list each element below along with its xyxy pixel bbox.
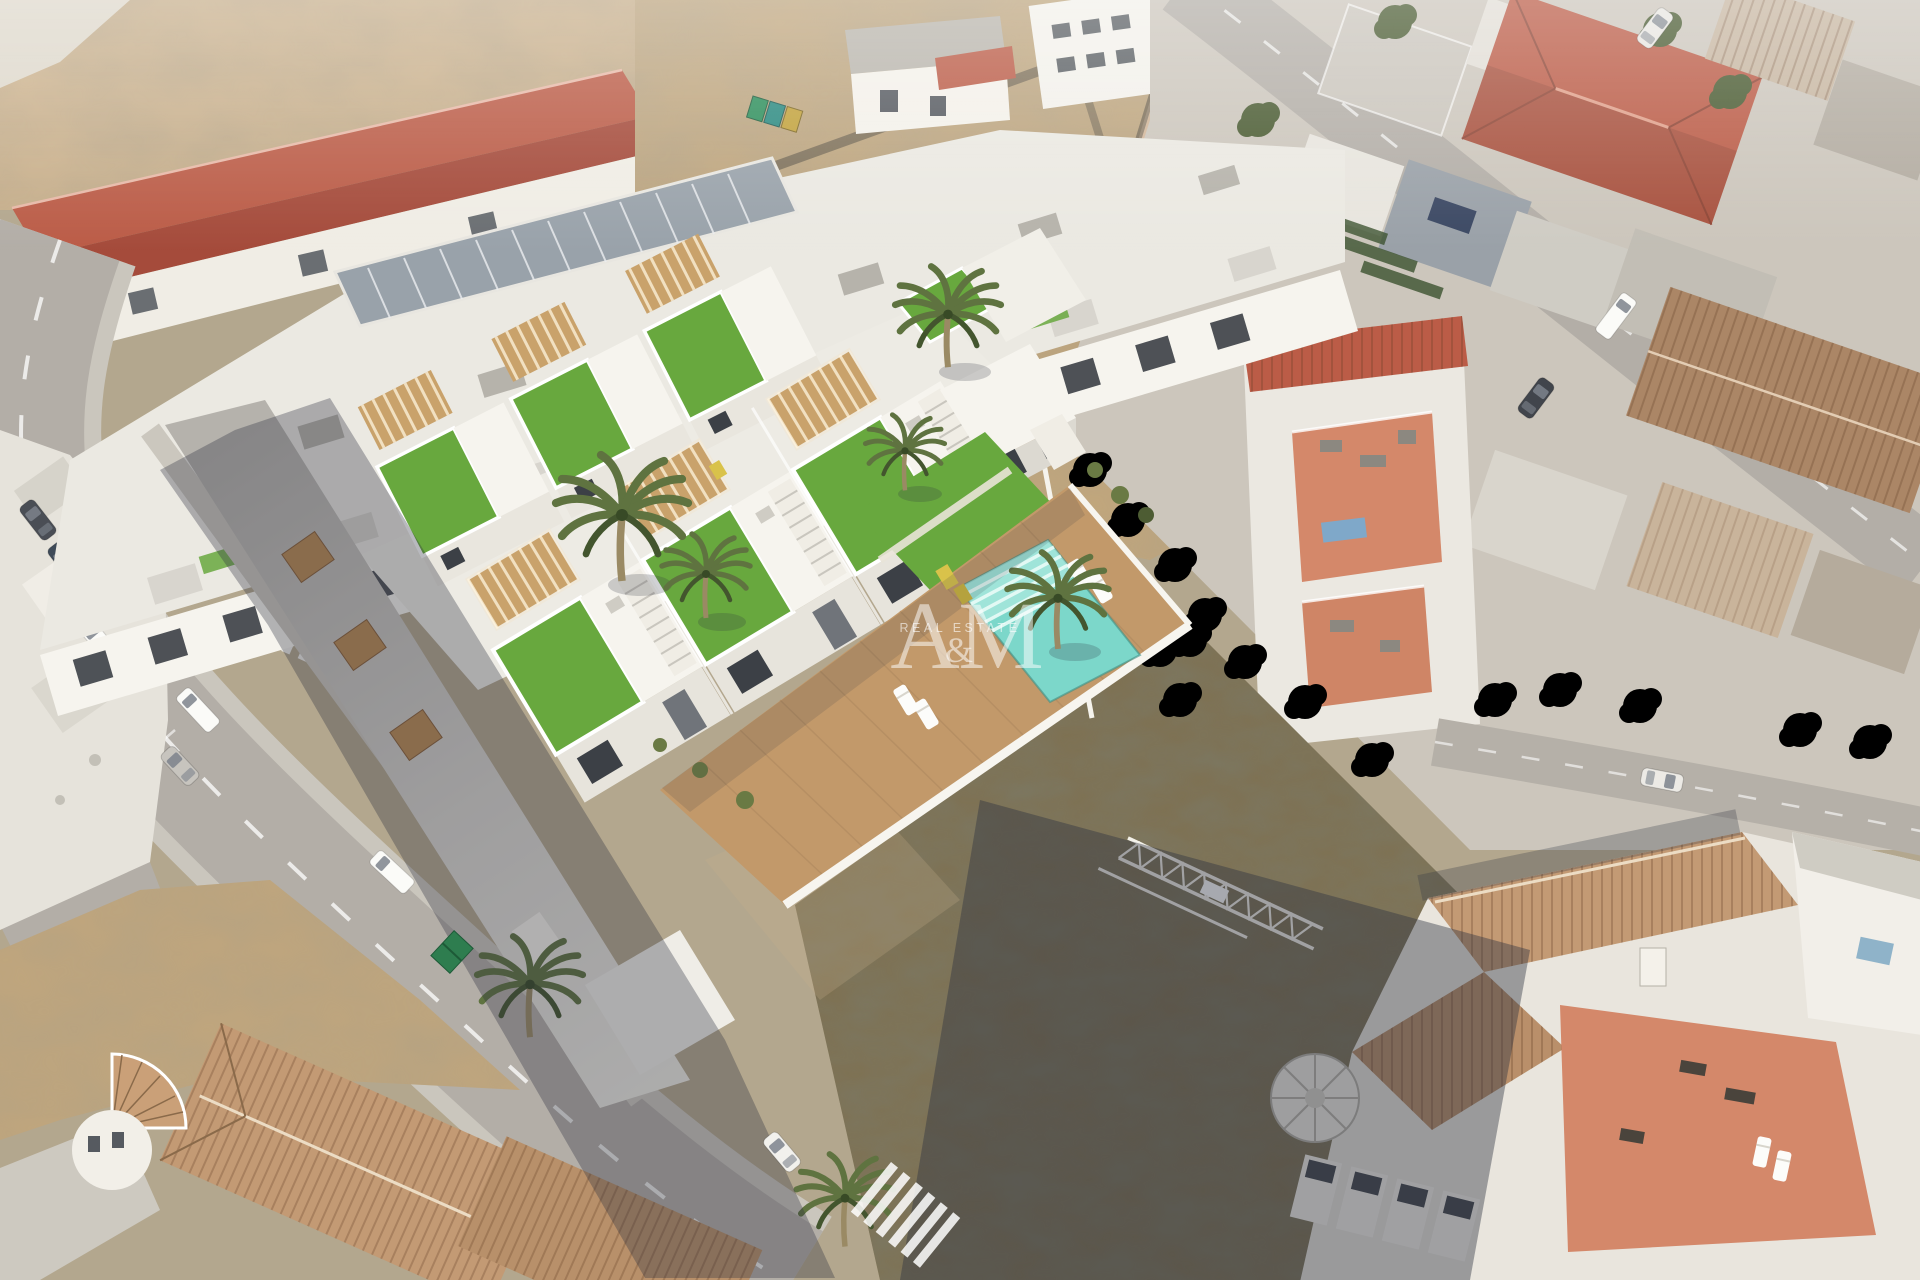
white-building-right [1792,832,1920,1035]
aerial-scene: A & M REAL ESTATE [0,0,1920,1280]
watermark-letter-m: M [958,582,1043,689]
roof-terrace [1560,1005,1876,1252]
aerial-photo: A & M REAL ESTATE [0,0,1920,1280]
watermark-tagline: REAL ESTATE [900,621,1021,635]
watermark: A & M REAL ESTATE [890,582,1043,689]
chimney [1640,948,1666,986]
haze-overlay [0,0,1920,560]
